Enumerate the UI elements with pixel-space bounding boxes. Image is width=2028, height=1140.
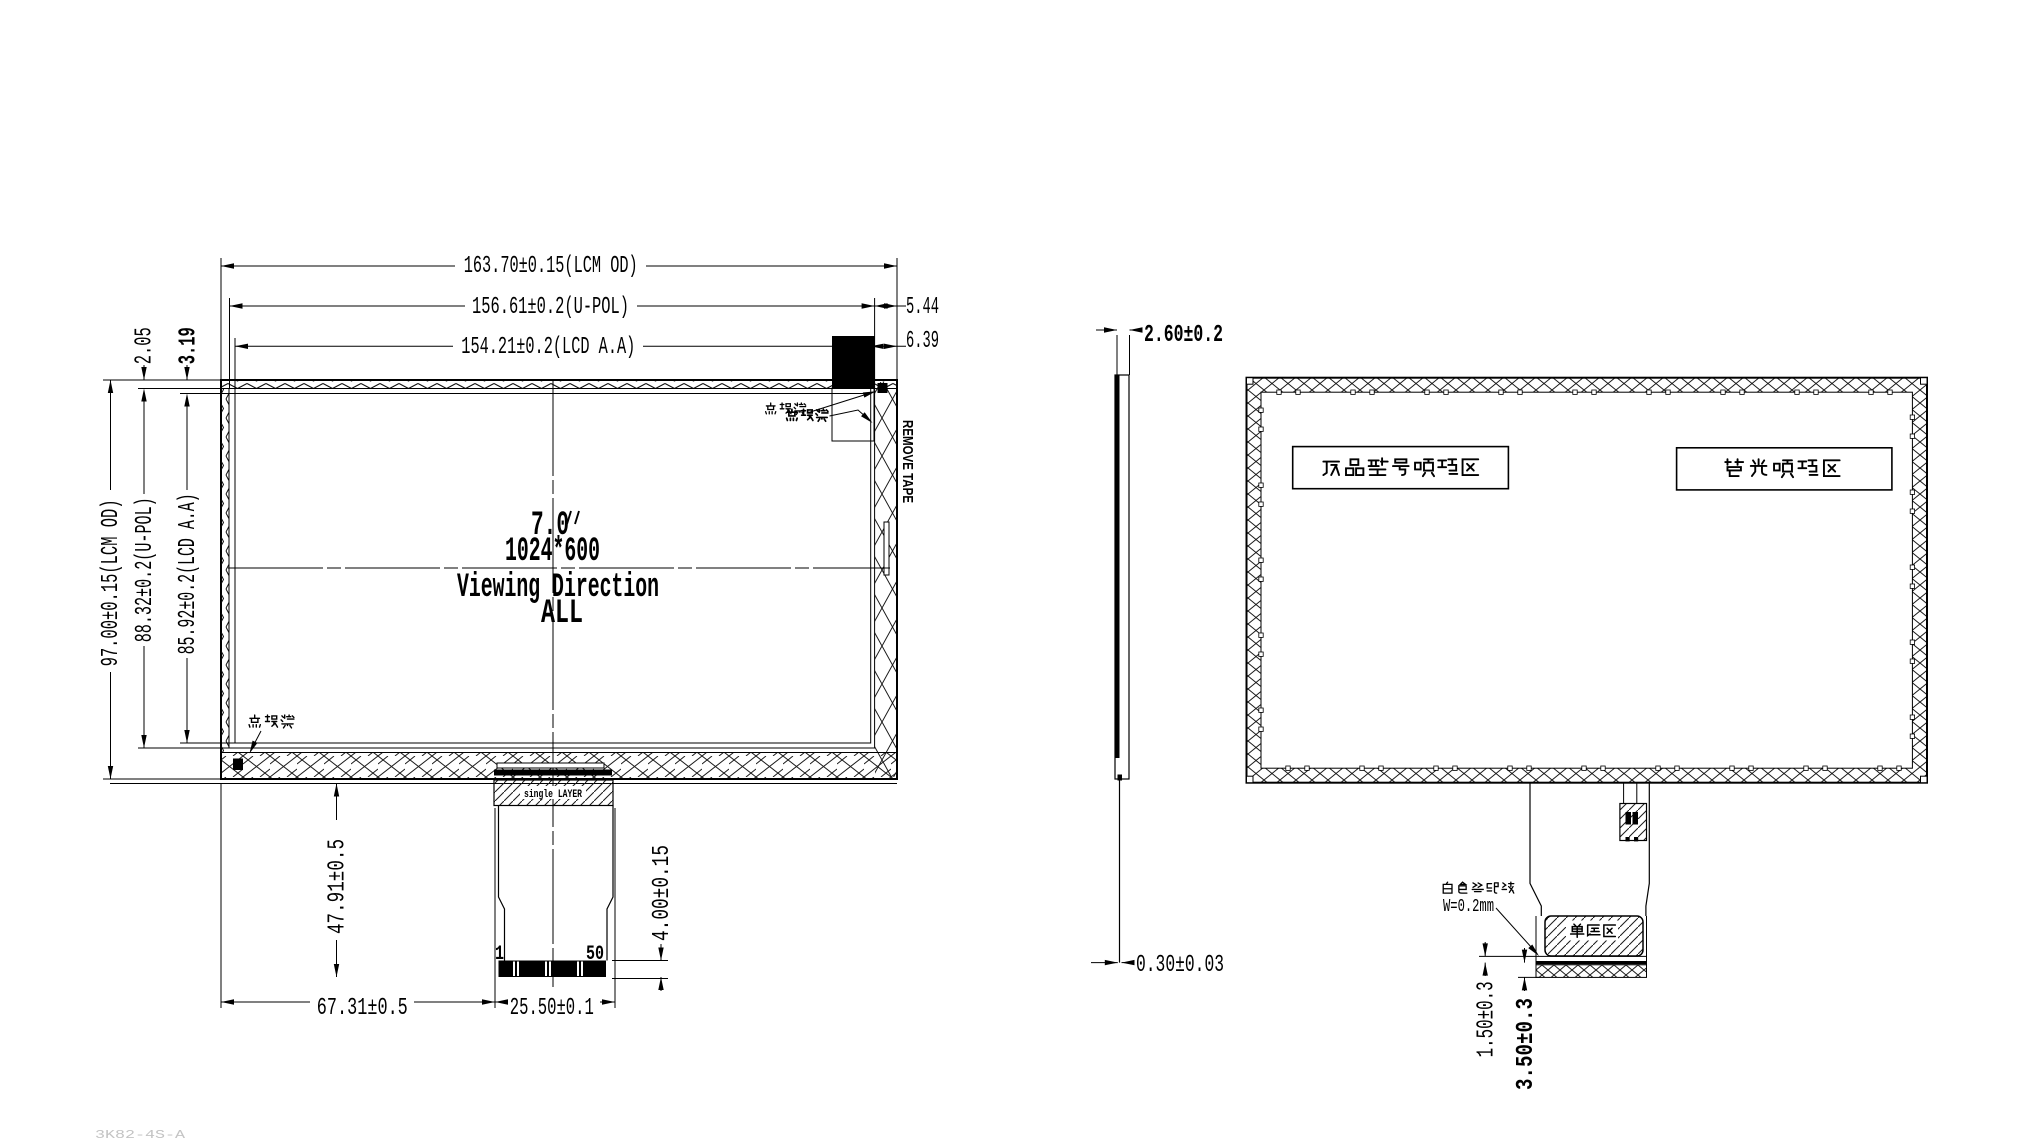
svg-text:67.31±0.5: 67.31±0.5 [317, 995, 408, 1022]
svg-text:163.70±0.15(LCM OD): 163.70±0.15(LCM OD) [464, 253, 638, 280]
svg-text:W=0.2mm: W=0.2mm [1443, 897, 1494, 917]
svg-text:REMOVE TAPE: REMOVE TAPE [899, 420, 915, 503]
svg-text:3.50±0.3: 3.50±0.3 [1513, 998, 1540, 1090]
svg-text:2.05: 2.05 [132, 327, 159, 364]
svg-text:1024*600: 1024*600 [505, 533, 600, 571]
svg-text:88.32±0.2(U-POL): 88.32±0.2(U-POL) [132, 497, 159, 642]
svg-text:50: 50 [586, 943, 604, 966]
svg-text:ALL: ALL [541, 595, 583, 633]
svg-text:85.92±0.2(LCD A.A): 85.92±0.2(LCD A.A) [175, 493, 202, 654]
svg-text:3K82-4S-A: 3K82-4S-A [95, 1128, 186, 1140]
svg-text:154.21±0.2(LCD A.A): 154.21±0.2(LCD A.A) [461, 334, 635, 361]
svg-text:97.00±0.15(LCM OD): 97.00±0.15(LCM OD) [98, 499, 125, 666]
svg-text:47.91±0.5: 47.91±0.5 [325, 839, 352, 934]
svg-text:156.61±0.2(U-POL): 156.61±0.2(U-POL) [472, 294, 629, 321]
svg-text:3.19: 3.19 [176, 327, 203, 364]
svg-text:1: 1 [495, 943, 504, 966]
svg-text:4.00±0.15: 4.00±0.15 [649, 845, 676, 941]
svg-text:5.44: 5.44 [906, 294, 939, 321]
svg-text:25.50±0.1: 25.50±0.1 [510, 995, 594, 1022]
svg-text:1.50±0.3: 1.50±0.3 [1473, 981, 1500, 1057]
svg-text:6.39: 6.39 [906, 328, 939, 355]
svg-text:0.30±0.03: 0.30±0.03 [1136, 952, 1224, 979]
svg-text:single LAYER: single LAYER [524, 789, 582, 801]
svg-text:2.60±0.2: 2.60±0.2 [1144, 322, 1223, 349]
